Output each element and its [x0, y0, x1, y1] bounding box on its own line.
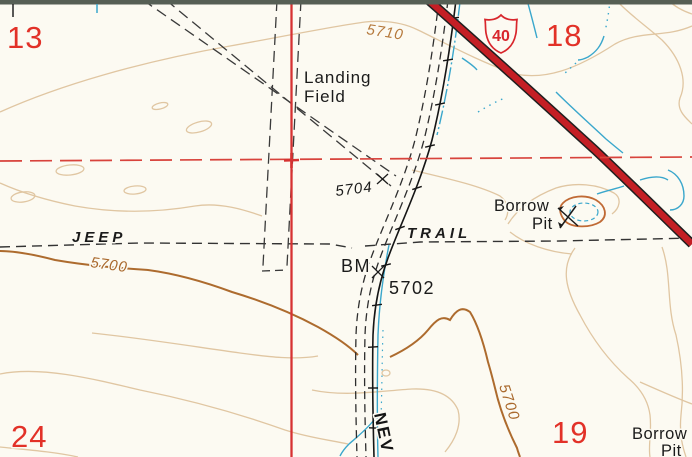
map-neatline — [0, 0, 692, 17]
stream — [527, 0, 537, 38]
township-dashed-line — [0, 157, 692, 161]
section-number-18: 18 — [546, 18, 582, 53]
benchmark-x — [372, 266, 384, 278]
trail-label: TRAIL — [407, 225, 471, 242]
borrow-pit-label-1: Borrow — [494, 197, 549, 215]
benchmark-label: BM — [341, 256, 371, 276]
borrow-pit-lower-label-1: Borrow — [632, 425, 687, 443]
runway-edge — [166, 0, 391, 186]
stream — [640, 177, 668, 180]
runway-end — [262, 270, 288, 271]
landing-field-label-1: Landing — [304, 68, 372, 87]
map-labels: 13 18 24 19 40 Landing Field 5710 5700 5… — [7, 18, 687, 457]
borrow-pit-lower-label-2: Pit — [661, 442, 682, 457]
spot-elevation-label: 5704 — [334, 179, 373, 200]
section-number-24: 24 — [11, 419, 47, 454]
jeep-label: JEEP — [72, 229, 126, 246]
map-canvas: 13 18 24 19 40 Landing Field 5710 5700 5… — [0, 0, 692, 457]
contour-label-5700-left: 5700 — [89, 254, 128, 276]
route-shield-number: 40 — [492, 28, 510, 45]
pick-and-shovel-icon — [558, 206, 578, 228]
landing-field-label-2: Field — [304, 87, 346, 106]
section-corner-cross — [284, 153, 299, 168]
benchmark-elevation: 5702 — [389, 278, 435, 298]
stream — [462, 58, 477, 70]
section-number-13: 13 — [7, 20, 43, 55]
stream-dotted — [605, 0, 610, 32]
section-number-19: 19 — [552, 415, 588, 450]
landing-strip-dashes — [143, 0, 396, 271]
spot-elevation-x — [377, 174, 388, 184]
pit-water — [570, 203, 598, 221]
stream-dotted — [478, 98, 505, 112]
point-symbols — [372, 15, 578, 278]
topo-map: 13 18 24 19 40 Landing Field 5710 5700 5… — [0, 0, 692, 457]
stream — [668, 170, 684, 210]
borrow-pit-label-2: Pit — [532, 215, 553, 233]
runway-edge — [143, 0, 396, 176]
contour-label-5710: 5710 — [365, 21, 405, 44]
runway-edge — [287, 0, 301, 266]
